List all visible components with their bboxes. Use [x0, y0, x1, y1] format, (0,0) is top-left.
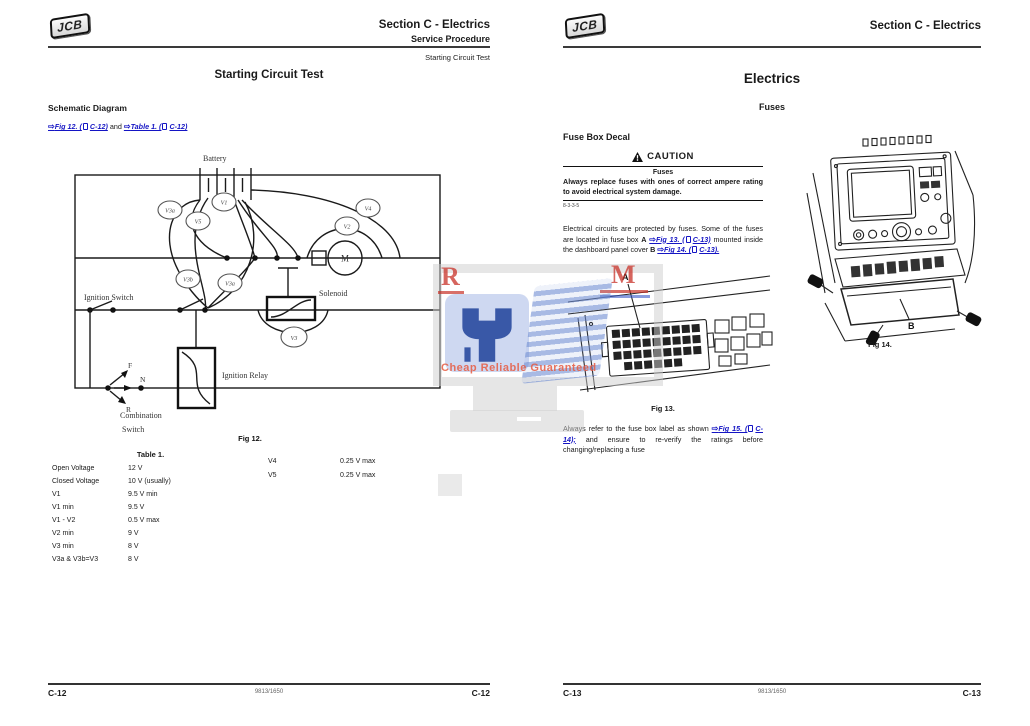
caution-header: CAUTION: [563, 151, 763, 162]
fuse-array: [600, 319, 715, 377]
meter-v3a: V3a: [165, 209, 175, 215]
console-panel: [831, 152, 956, 250]
caution-label: CAUTION: [647, 151, 694, 162]
jcb-logo-text: JCB: [565, 13, 605, 39]
header-section-title: Section C - Electrics: [230, 18, 490, 32]
page-ref-icon: [748, 425, 753, 432]
caution-text: Always replace fuses with ones of correc…: [563, 177, 763, 197]
caution-title: Fuses: [563, 169, 763, 176]
fig14-dashboard-drawing: B: [805, 133, 985, 345]
fig12-caption: Fig 12.: [238, 434, 262, 443]
table1-link[interactable]: ⇨Table 1. (C-12): [124, 122, 188, 131]
fig13-caption: Fig 13.: [563, 404, 763, 413]
xref-arrow-icon: ⇨: [649, 235, 656, 244]
schematic-heading: Schematic Diagram: [48, 103, 127, 113]
callout-a: A: [641, 235, 646, 244]
combination-switch-label-2: Switch: [122, 425, 144, 434]
battery-label: Battery: [203, 154, 227, 163]
left-page-header: Section C - Electrics Service Procedure: [230, 18, 490, 46]
page-ref-icon: [162, 123, 167, 130]
xref-arrow-icon: ⇨: [48, 122, 55, 131]
jcb-logo: JCB: [565, 16, 605, 36]
fuse-box-decal-heading: Fuse Box Decal: [563, 132, 630, 142]
tray-fuse-panel: [850, 256, 944, 277]
table-row: V2 min9 V: [52, 527, 267, 540]
page-ref-icon: [686, 236, 691, 243]
page-ref-icon: [692, 246, 697, 253]
header-topic: Starting Circuit Test: [425, 53, 490, 62]
caution-code: 8-3-3-5: [563, 203, 763, 209]
watermark-base-slot: [517, 417, 541, 421]
meter-v2: V2: [344, 225, 351, 231]
motor-label: M: [341, 254, 349, 264]
paragraph-text: Always refer to the fuse box label as sh…: [563, 424, 709, 433]
header-rule: [563, 46, 981, 48]
fuses-paragraph: Electrical circuits are protected by fus…: [563, 224, 763, 256]
fig14-label-b: B: [908, 321, 915, 331]
page-title: Starting Circuit Test: [48, 69, 490, 81]
position-n-label: N: [140, 375, 146, 384]
footer-rule: [48, 683, 490, 685]
footer-doc-number: 9813/1650: [48, 689, 490, 695]
page-ref-icon: [83, 123, 88, 130]
ignition-relay-label: Ignition Relay: [222, 371, 268, 380]
table-row: V3a & V3b=V38 V: [52, 553, 267, 566]
right-page-header: Section C - Electrics: [870, 20, 981, 32]
relay-cubes: [715, 314, 772, 366]
page-title: Electrics: [563, 71, 981, 86]
reference-line: ⇨Fig 12. (C-12) and ⇨Table 1. (C-12): [48, 122, 187, 131]
fuse-label-paragraph: Always refer to the fuse box label as sh…: [563, 424, 763, 456]
jcb-logo: JCB: [50, 16, 90, 36]
caution-body: Fuses Always replace fuses with ones of …: [563, 166, 763, 201]
page-subtitle: Fuses: [563, 102, 981, 112]
footer-doc-number: 9813/1650: [563, 689, 981, 695]
table-row: Open Voltage12 V: [52, 462, 267, 475]
table1-right-columns: V40.25 V max V50.25 V max: [268, 455, 418, 482]
xref-arrow-icon: ⇨: [124, 122, 131, 131]
manual-two-page-spread: JCB Section C - Electrics Service Proced…: [0, 0, 1030, 726]
table-row: V40.25 V max: [268, 455, 418, 469]
meter-v3b: V3b: [183, 278, 193, 284]
starting-circuit-schematic: V3a V5 V1 V4 V2 V3b V3a V3 Battery Ignit…: [60, 140, 480, 450]
header-subsection: Service Procedure: [230, 34, 490, 45]
meter-v1: V1: [221, 201, 228, 207]
table-row: Closed Voltage10 V (usually): [52, 475, 267, 488]
footer-page-right: C-13: [963, 688, 981, 698]
table-row: V50.25 V max: [268, 469, 418, 483]
table1: Open Voltage12 V Closed Voltage10 V (usu…: [52, 462, 267, 566]
position-r-label: R: [126, 405, 131, 414]
ignition-switch-label: Ignition Switch: [84, 293, 134, 302]
table-row: V1 min9.5 V: [52, 501, 267, 514]
fig13-label-a: A: [622, 272, 629, 282]
warning-triangle-icon: [632, 152, 643, 162]
watermark-monitor-neck: [473, 386, 557, 411]
callout-b: B: [650, 245, 655, 254]
position-f-label: F: [128, 361, 132, 370]
meter-v4: V4: [365, 206, 372, 213]
footer-rule: [563, 683, 981, 685]
meter-v3a-2: V3a: [225, 282, 235, 288]
vent-slots: [863, 136, 931, 147]
fig12-link[interactable]: ⇨Fig 12. (C-12): [48, 122, 108, 131]
table-row: V3 min8 V: [52, 540, 267, 553]
meter-v3: V3: [291, 336, 298, 342]
watermark-stub: [438, 474, 462, 496]
table-row: V1 - V20.5 V max: [52, 514, 267, 527]
table-row: V19.5 V min: [52, 488, 267, 501]
footer-page-right: C-12: [472, 688, 490, 698]
fig13-link[interactable]: ⇨Fig 13. (C-13): [649, 235, 710, 244]
conjunction: and: [110, 122, 122, 131]
paragraph-text: and ensure to re-verify the ratings befo…: [563, 435, 763, 455]
caution-block: CAUTION Fuses Always replace fuses with …: [563, 151, 763, 209]
fig14-caption: Fig 14.: [820, 340, 940, 349]
solenoid-label: Solenoid: [319, 289, 347, 298]
header-rule: [48, 46, 490, 48]
fig14-link[interactable]: ⇨Fig 14. (C-13).: [657, 245, 719, 254]
table1-caption: Table 1.: [48, 450, 253, 459]
voltmeter-circles: [158, 193, 380, 347]
jcb-logo-text: JCB: [50, 13, 90, 39]
combination-switch-arrows: [110, 370, 132, 404]
meter-v5: V5: [195, 220, 202, 226]
fig13-fuse-box-drawing: A: [560, 262, 775, 402]
